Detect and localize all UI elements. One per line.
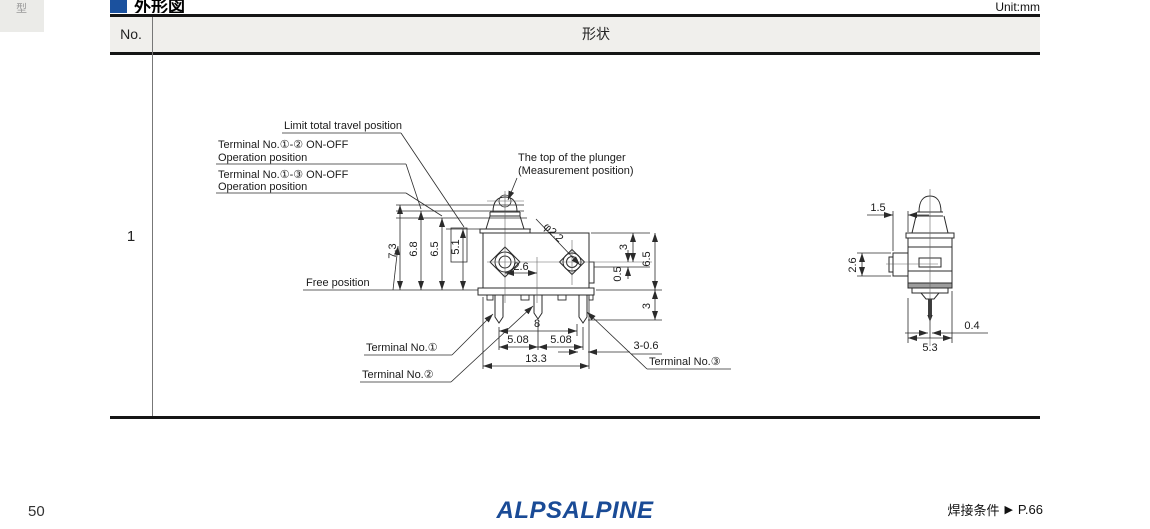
dim-op-1-2-height: 6.8 [408, 241, 420, 256]
dim-side-pin-width: 0.4 [964, 320, 979, 332]
dim-pin-span: 8 [534, 318, 540, 330]
dim-side-button: 2.6 [847, 257, 859, 272]
dim-pitch-left: 5.08 [507, 334, 528, 346]
soldering-conditions-text: 焊接条件 [947, 500, 999, 519]
dim-right-pin: 3 [641, 303, 653, 309]
dim-hole-diameter: φ2.2 [541, 221, 566, 245]
label-terminal-1-2-line2: Operation position [218, 152, 307, 164]
dim-side-offset: 1.5 [870, 202, 885, 214]
dim-right-step: 0.5 [612, 266, 624, 281]
dim-right-top: 3 [618, 244, 630, 250]
dim-right-body: 6.5 [641, 251, 653, 266]
front-view [478, 195, 594, 323]
dim-limit-height: 5.1 [450, 239, 462, 254]
dim-pitch-right: 5.08 [550, 334, 571, 346]
label-terminal-no1: Terminal No.① [366, 342, 438, 354]
dim-overall-width: 13.3 [525, 353, 546, 365]
label-free-position: Free position [306, 277, 370, 289]
label-terminal-no3: Terminal No.③ [649, 356, 721, 368]
label-terminal-1-2-line1: Terminal No.①-② ON-OFF [218, 139, 349, 151]
page-number: 50 [28, 503, 45, 520]
dim-pin-width: 3-0.6 [633, 340, 658, 352]
label-plunger-top-line2: (Measurement position) [518, 165, 634, 177]
outline-drawing: 7.3 6.8 6.5 5.1 φ2.2 2.6 3 0.5 6.5 3 8 5… [0, 0, 1150, 529]
right-arrow-icon: ▶ [1004, 503, 1012, 516]
label-limit-total-travel: Limit total travel position [284, 120, 402, 132]
label-plunger-top-line1: The top of the plunger [518, 152, 626, 164]
catalog-page: 型 外形図 Unit:mm No. 形状 1 [0, 0, 1150, 529]
dim-free-height: 7.3 [387, 243, 399, 258]
label-terminal-1-3-line2: Operation position [218, 181, 307, 193]
alps-alpine-logo: ALPSALPINE [460, 497, 690, 525]
side-centerlines [886, 189, 938, 346]
side-view [889, 196, 954, 338]
label-terminal-1-3-line1: Terminal No.①-③ ON-OFF [218, 169, 349, 181]
dim-hole-offset: 2.6 [513, 261, 528, 273]
label-terminal-no2: Terminal No.② [362, 369, 434, 381]
dim-op-1-3-height: 6.5 [429, 241, 441, 256]
dim-side-width: 5.3 [922, 342, 937, 354]
soldering-conditions-link[interactable]: 焊接条件 ▶ P.66 [947, 500, 1043, 519]
page-reference: P.66 [1018, 502, 1043, 517]
